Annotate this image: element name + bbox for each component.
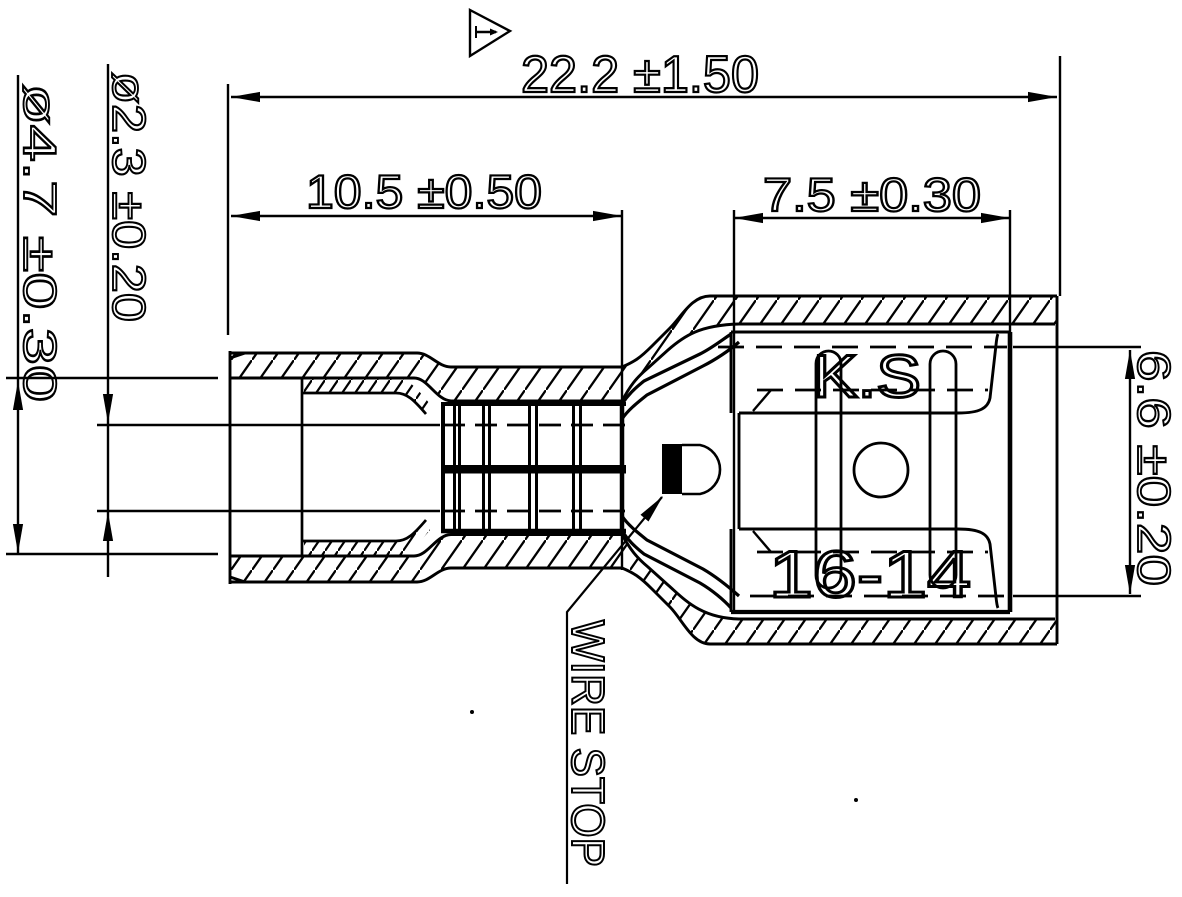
svg-text:16-14: 16-14 bbox=[769, 537, 971, 611]
svg-text:7.5 ±0.30: 7.5 ±0.30 bbox=[763, 168, 981, 221]
svg-text:22.2 ±1.50: 22.2 ±1.50 bbox=[521, 46, 759, 104]
svg-text:K.S: K.S bbox=[813, 343, 921, 410]
svg-text:10.5 ±0.50: 10.5 ±0.50 bbox=[306, 165, 542, 218]
svg-text:WIRE STOP: WIRE STOP bbox=[562, 620, 614, 867]
svg-text:ø4.7 ±0.30: ø4.7 ±0.30 bbox=[14, 84, 66, 402]
svg-text:6.6 ±0.20: 6.6 ±0.20 bbox=[1128, 350, 1180, 586]
svg-text:ø2.3 ±0.20: ø2.3 ±0.20 bbox=[103, 72, 155, 322]
